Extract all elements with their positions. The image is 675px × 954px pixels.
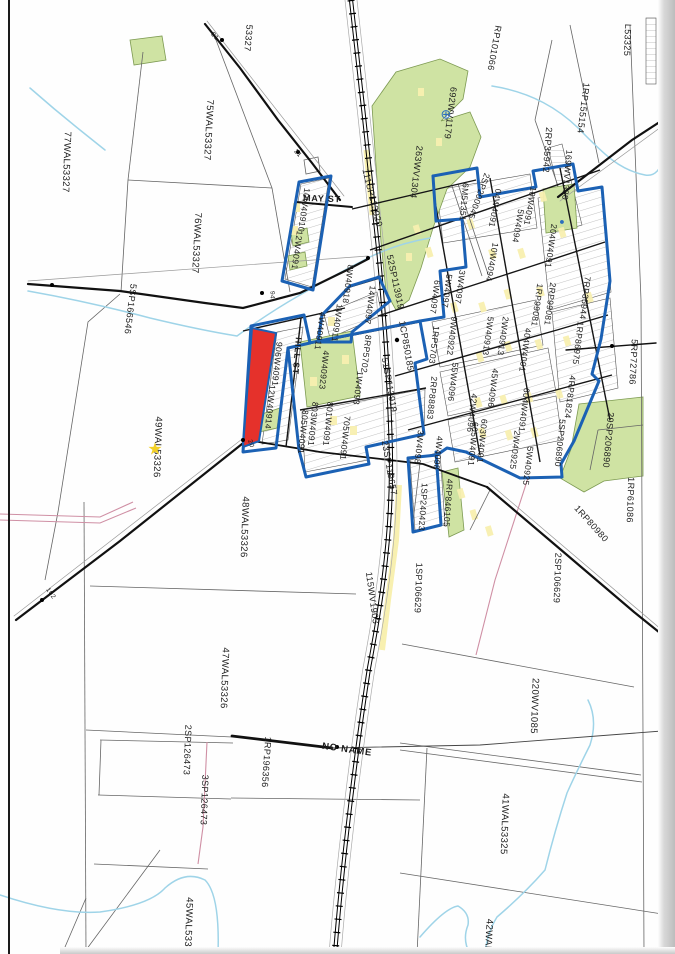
scanned-cadastral-map-page: 5332775WAL5332777WAL5332776WAL533275SP16…	[0, 0, 675, 954]
scan-edge-left	[8, 0, 10, 954]
scan-edge-right	[658, 0, 675, 954]
map-geometry	[0, 0, 675, 954]
scan-edge-bottom	[60, 947, 675, 954]
